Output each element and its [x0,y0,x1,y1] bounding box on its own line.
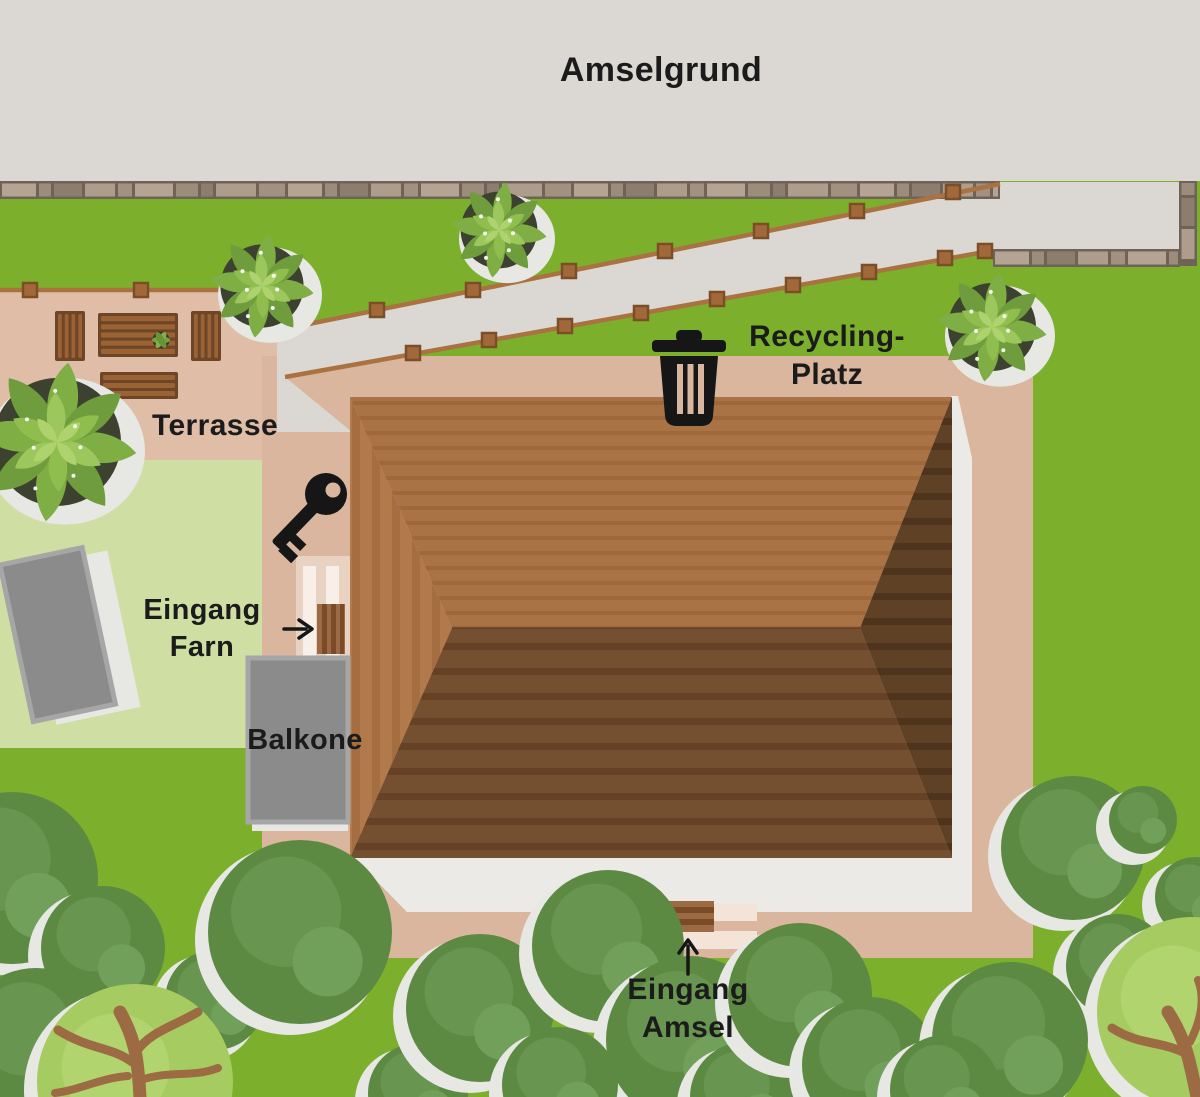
entrance-farn-label: Eingang Farn [143,592,260,666]
site-map-graphic [0,0,1200,1097]
recycling-area-label: Recycling- Platz [749,318,905,394]
roof-south-face [350,628,952,858]
entrance-farn-label-line2: Farn [143,629,260,666]
entrance-amsel-label-line2: Amsel [627,1009,748,1047]
roof-north-face [350,397,952,628]
entrance-amsel-label: Eingang Amsel [627,971,748,1047]
entrance-farn-doormat [317,604,345,654]
recycling-label-line2: Platz [749,356,905,394]
recycling-label-line1: Recycling- [749,318,905,356]
balconies-label: Balkone [247,723,363,758]
street-label: Amselgrund [560,50,762,91]
walkway-east [951,396,972,912]
building-roof [350,397,952,858]
entrance-farn-door-leaf [303,566,316,659]
entrance-farn-label-line1: Eingang [143,592,260,629]
terrace-label: Terrasse [152,408,278,445]
entrance-amsel-label-line1: Eingang [627,971,748,1009]
site-map: Amselgrund Recycling- Platz Terrasse Ein… [0,0,1200,1097]
